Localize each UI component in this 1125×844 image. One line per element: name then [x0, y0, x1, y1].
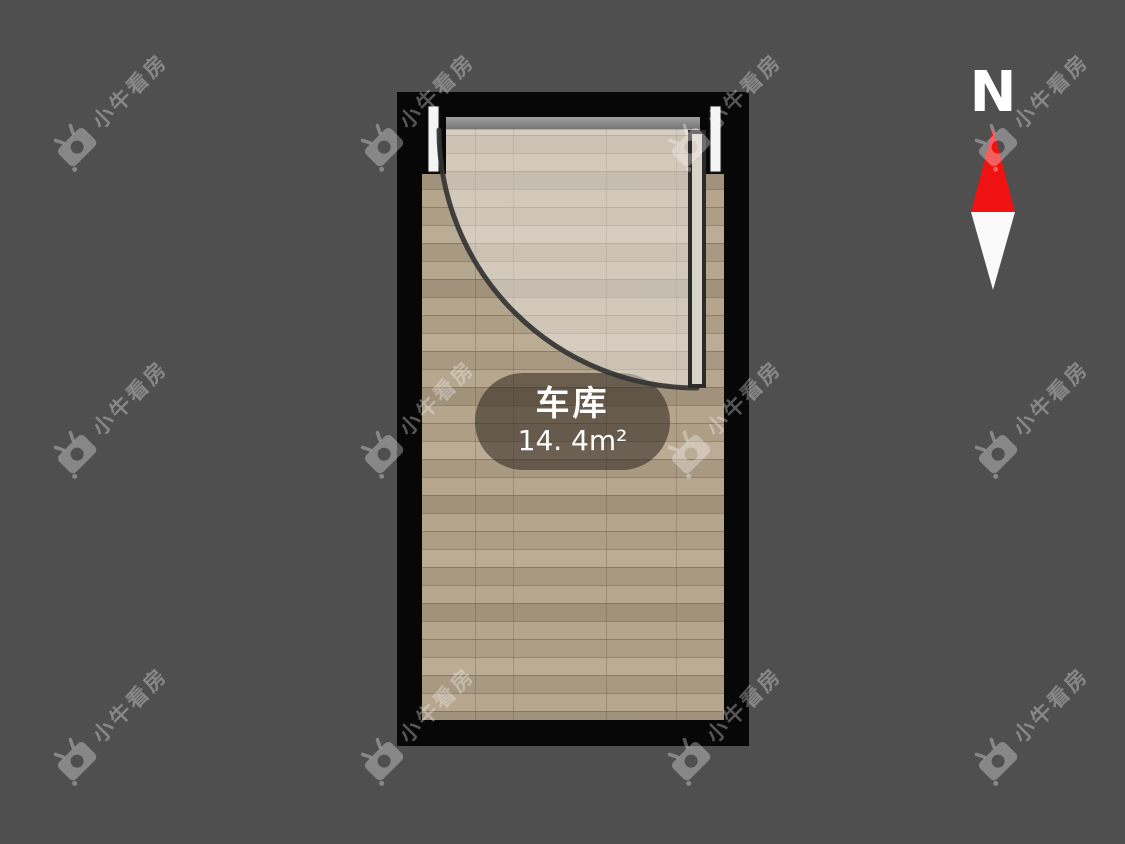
watermark: 小牛看房: [47, 42, 178, 173]
watermark-text: 小牛看房: [85, 660, 174, 749]
watermark: 小牛看房: [968, 656, 1099, 787]
watermark-text: 小牛看房: [1006, 353, 1095, 442]
watermark: 小牛看房: [968, 349, 1099, 480]
niu-logo-icon: [968, 424, 1025, 481]
floor-plan-screenshot: 车库 14. 4m² N: [0, 0, 1125, 844]
room-area-label: 14. 4m²: [518, 424, 628, 458]
room-name-label: 车库: [536, 385, 610, 424]
compass-needle-icon: [967, 126, 1019, 292]
watermark: 小牛看房: [47, 349, 178, 480]
watermark-text: 小牛看房: [85, 46, 174, 135]
needle-south-half: [971, 212, 1015, 290]
niu-logo-icon: [47, 424, 104, 481]
niu-logo-icon: [47, 117, 104, 174]
watermark: 小牛看房: [47, 656, 178, 787]
watermark-text: 小牛看房: [85, 353, 174, 442]
room-label: 车库 14. 4m²: [475, 373, 670, 470]
watermark-text: 小牛看房: [1006, 660, 1095, 749]
floor-plan: 车库 14. 4m²: [397, 92, 749, 746]
needle-north-half: [971, 128, 1015, 212]
compass-north-label: N: [953, 64, 1033, 122]
niu-logo-icon: [47, 731, 104, 788]
niu-logo-icon: [968, 731, 1025, 788]
